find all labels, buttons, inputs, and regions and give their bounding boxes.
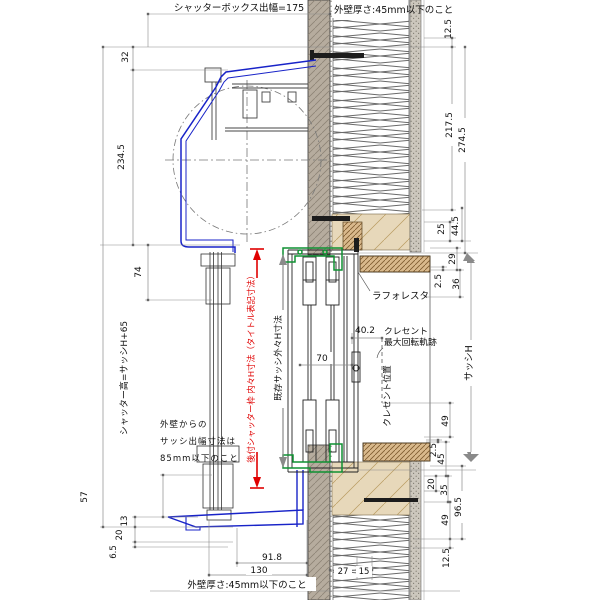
dim-20-right: 20 [427, 478, 437, 490]
crescent-label-1: クレセント [384, 326, 428, 337]
dim-49-lower: 49 [441, 514, 451, 526]
crescent-label-2: 最大回転軌跡 [384, 336, 437, 348]
dim-274-5: 274.5 [458, 127, 468, 153]
wall-thickness-note-bottom: 外壁厚さ:45mm以下のこと [187, 579, 306, 591]
dim-6-5: 6.5 [109, 545, 119, 559]
dim-15: 15 [359, 567, 370, 577]
dim-29: 29 [448, 253, 458, 265]
existing-sash-section [288, 250, 382, 472]
existing-sash-dim-label: 既存サッシ外々H寸法 [272, 315, 284, 401]
offset-note-line2: サッシ出幅寸法は [160, 436, 236, 447]
dim-12-5-bottom: 12.5 [442, 548, 452, 568]
dim-74: 74 [134, 266, 144, 278]
laforesta-wood-blocks [360, 256, 430, 461]
dim-45: 45 [437, 453, 447, 464]
shutter-roll-circle [165, 80, 331, 242]
offset-note-line1: 外壁からの [160, 419, 208, 430]
dim-36: 36 [452, 278, 462, 290]
shutter-guide-rail [197, 252, 239, 520]
dim-2-5-top: 2.5 [434, 274, 444, 288]
dim-130: 130 [250, 566, 267, 576]
dim-217-5: 217.5 [445, 112, 455, 138]
exterior-wall-cladding [308, 0, 333, 600]
dim-25: 25 [437, 223, 447, 234]
technical-drawing-page: シャッターボックス出幅=175 外壁厚さ:45mm以下のこと 32 234.5 … [0, 0, 600, 600]
laforesta-label: ラフォレスタ [372, 291, 429, 302]
retrofit-frame-dim-label: 後付シャッター枠 内々H寸法（タイトル表記寸法） [246, 271, 256, 462]
dim-32: 32 [121, 51, 131, 62]
shutter-section-drawing: シャッターボックス出幅=175 外壁厚さ:45mm以下のこと 32 234.5 … [0, 0, 600, 600]
dim-40-2: 40.2 [355, 326, 375, 336]
dim-49-upper: 49 [441, 415, 451, 427]
dim-13: 13 [120, 516, 130, 527]
dim-12-5-top: 12.5 [444, 19, 454, 39]
dim-27: 27 [338, 567, 349, 577]
dim-35: 35 [440, 484, 450, 495]
dim-20-left: 20 [115, 530, 125, 541]
crescent-position-label: クレセント位置 [381, 365, 393, 427]
offset-note-line3: 85mm以下のこと [160, 454, 239, 464]
shutter-height-label: シャッター高=サッシH+65 [118, 321, 130, 435]
dim-91-8: 91.8 [262, 553, 282, 563]
dim-57: 57 [80, 491, 90, 502]
dim-44-5: 44.5 [451, 216, 461, 236]
shutter-box-depth-note: シャッターボックス出幅=175 [174, 2, 304, 14]
shutter-bottom-guide [168, 470, 303, 530]
dim-234-5: 234.5 [117, 144, 127, 170]
shutter-box-frame [181, 60, 316, 253]
dim-96-5: 96.5 [454, 497, 464, 517]
wall-thickness-note-top: 外壁厚さ:45mm以下のこと [334, 4, 453, 16]
leader-lines [358, 272, 383, 358]
sash-h-label: サッシH [464, 345, 475, 381]
dim-70: 70 [316, 354, 328, 364]
